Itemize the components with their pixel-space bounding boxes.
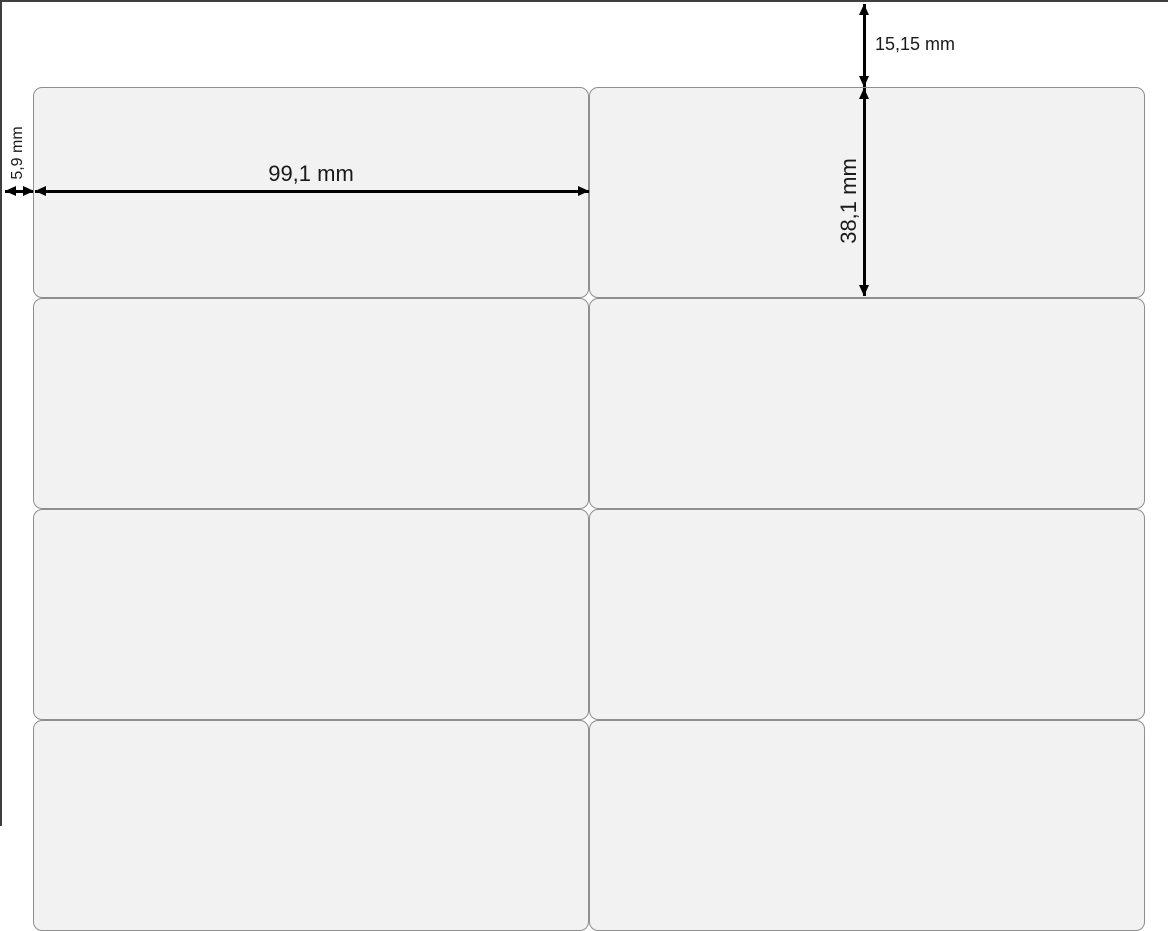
label-height-dimension-label: 38,1 mm [836, 151, 862, 251]
arrow-head-down-icon [859, 285, 869, 296]
label-cell [33, 298, 589, 509]
arrow-head-left-icon [5, 186, 16, 196]
left-margin-dimension-label: 5,9 mm [9, 126, 27, 180]
arrow-head-right-icon [23, 186, 34, 196]
label-cell [589, 509, 1145, 720]
label-cell [589, 87, 1145, 298]
label-width-arrow [35, 190, 589, 193]
label-width-dimension-label: 99,1 mm [231, 161, 391, 187]
label-cell [33, 509, 589, 720]
arrow-head-right-icon [578, 186, 589, 196]
label-sheet: 5,9 mm 99,1 mm 15,15 mm 38,1 mm [0, 0, 1168, 826]
label-cell [589, 298, 1145, 509]
top-margin-dimension-label: 15,15 mm [875, 34, 955, 55]
top-margin-arrow [863, 4, 866, 87]
arrow-head-down-icon [859, 76, 869, 87]
label-height-arrow [863, 88, 866, 296]
arrow-head-up-icon [859, 4, 869, 15]
arrow-head-up-icon [859, 88, 869, 99]
arrow-head-left-icon [35, 186, 46, 196]
